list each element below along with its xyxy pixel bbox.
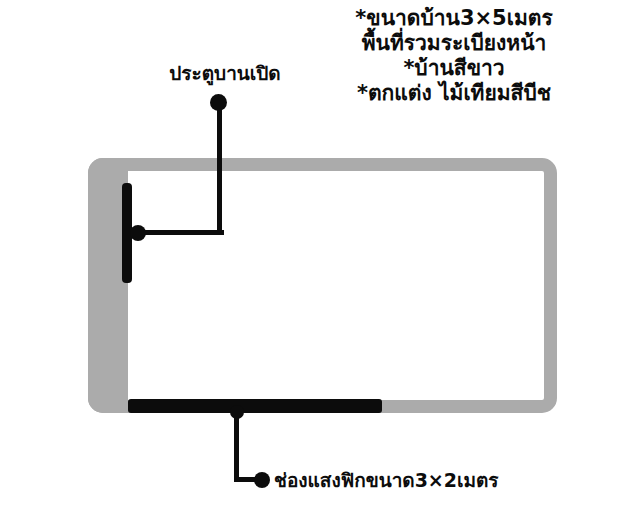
spec-note-house-size: *ขนาดบ้าน3×5เมตร (328, 6, 580, 31)
light-callout-dot (254, 472, 270, 488)
door-callout-dot (210, 94, 227, 111)
spec-note-decoration: *ตกแต่ง ไม้เทียมสีบีช (328, 81, 580, 106)
spec-note-house-color: *บ้านสีขาว (328, 56, 580, 81)
door-callout-line-vertical (217, 103, 222, 235)
floor-plan-canvas: *ขนาดบ้าน3×5เมตร พื้นที่รวมระเบียงหน้า *… (0, 0, 640, 530)
light-opening-label: ช่องแสงฟิกขนาด3×2เมตร (274, 467, 499, 493)
light-opening-marker-bar (128, 399, 382, 413)
house-wall-outline (88, 158, 557, 413)
light-callout-line-vertical (234, 412, 239, 482)
spec-note-area: พื้นที่รวมระเบียงหน้า (328, 31, 580, 56)
spec-notes-block: *ขนาดบ้าน3×5เมตร พื้นที่รวมระเบียงหน้า *… (328, 6, 580, 106)
door-label: ประตูบานเปิด (155, 58, 295, 88)
door-callout-line-horizontal (138, 230, 224, 235)
